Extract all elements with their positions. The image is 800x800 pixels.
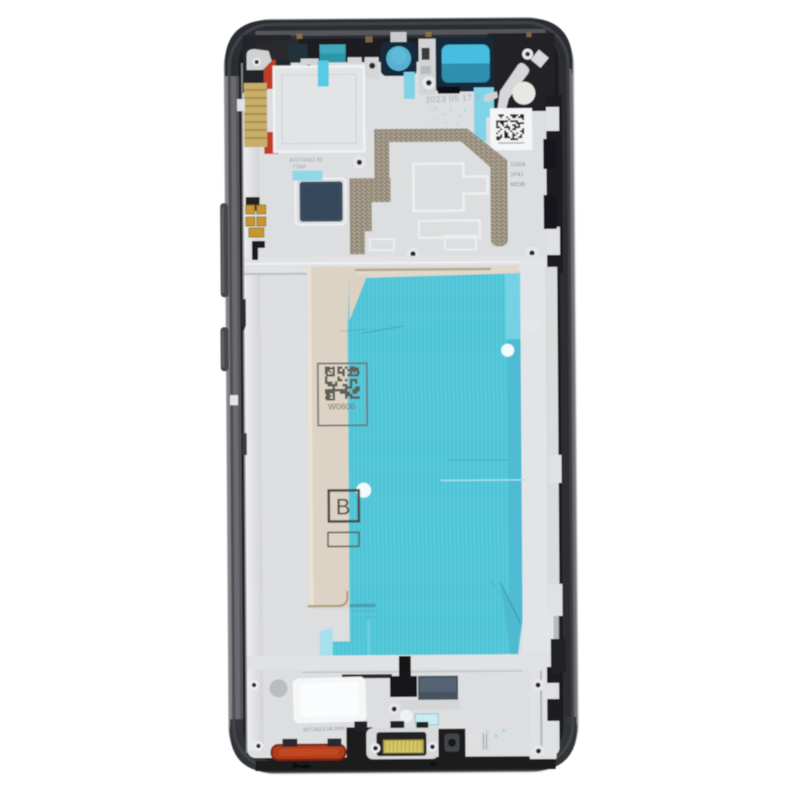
svg-text:W0606: W0606 — [328, 401, 355, 411]
svg-text:11504: 11504 — [510, 162, 525, 168]
svg-text:B: B — [336, 494, 351, 519]
svg-text:ATGTASO 49: ATGTASO 49 — [289, 158, 322, 164]
svg-text:TTAP: TTAP — [292, 165, 306, 171]
svg-text:1P4J: 1P4J — [510, 172, 523, 178]
svg-text:M23B: M23B — [511, 182, 526, 188]
